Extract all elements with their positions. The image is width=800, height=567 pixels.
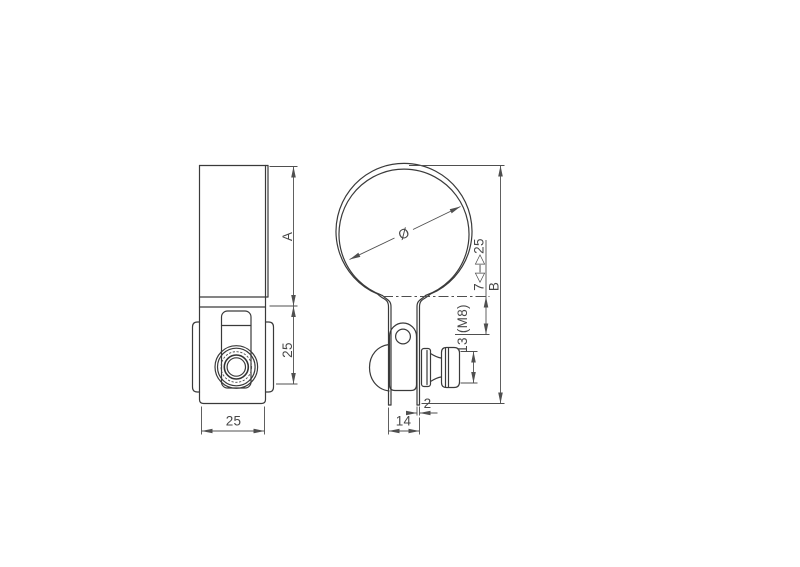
dimension-B: B — [409, 166, 505, 404]
nut-washer-front — [215, 346, 258, 389]
clamp-band-side — [336, 163, 472, 405]
leg-span-label: 14 — [396, 414, 412, 429]
serration-ring — [221, 352, 252, 383]
dim-25v-label: 25 — [280, 342, 295, 358]
technical-drawing: A 25 25 — [0, 0, 800, 567]
bolt-size-label: 13 (M8) — [455, 304, 470, 353]
range-label: 7◁–▷25 — [472, 238, 487, 291]
dim-25w-label: 25 — [226, 414, 242, 429]
nut-side — [370, 345, 390, 392]
dimension-bolt-size: 13 (M8) — [455, 304, 477, 383]
bolt-boss-side — [390, 323, 417, 391]
drawing-canvas: A 25 25 — [0, 0, 800, 567]
dimension-25-vertical: 25 — [276, 306, 298, 384]
front-view: A 25 25 — [193, 166, 298, 435]
dimension-A: A — [270, 167, 298, 307]
dimension-diameter: Ø — [350, 207, 461, 260]
bolt-hole — [396, 329, 411, 344]
diameter-symbol: Ø — [396, 225, 412, 243]
hex-bolt-side — [422, 348, 460, 388]
dimension-25-width: 25 — [202, 407, 265, 435]
dim-A-label: A — [280, 232, 295, 241]
side-view: Ø 7◁–▷25 13 (M8) B — [336, 163, 505, 434]
thickness-label: 2 — [424, 396, 432, 411]
dim-B-label: B — [487, 282, 502, 291]
dimension-leg-span: 14 — [389, 408, 420, 435]
